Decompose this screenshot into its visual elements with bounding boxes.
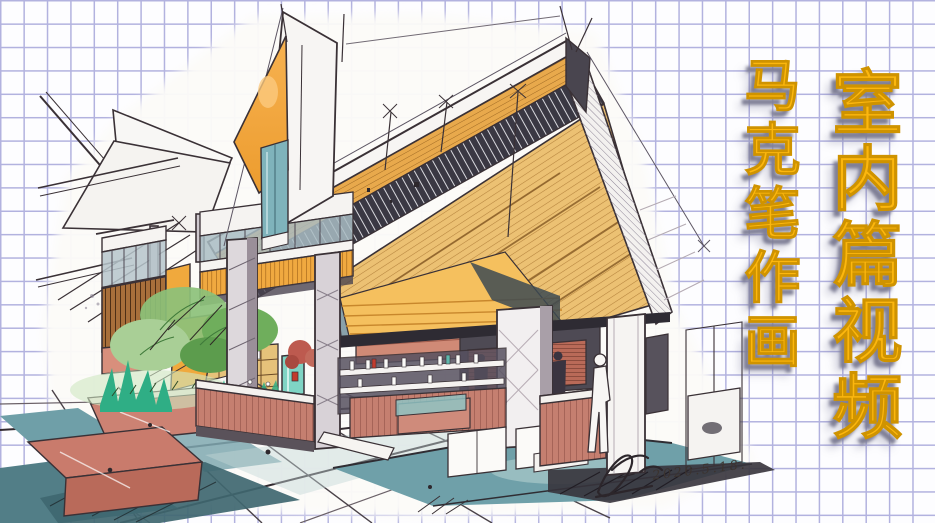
poster-canvas: 马克笔作画 室内篇视频 2020.5.18. — [0, 0, 935, 523]
main-title: 室内篇视频 — [820, 66, 904, 446]
column-mid — [315, 252, 340, 449]
dark-doorway — [646, 334, 668, 414]
column-right — [607, 314, 645, 475]
shelf-unit — [338, 348, 506, 438]
sub-title: 马克笔作画 — [733, 56, 801, 376]
